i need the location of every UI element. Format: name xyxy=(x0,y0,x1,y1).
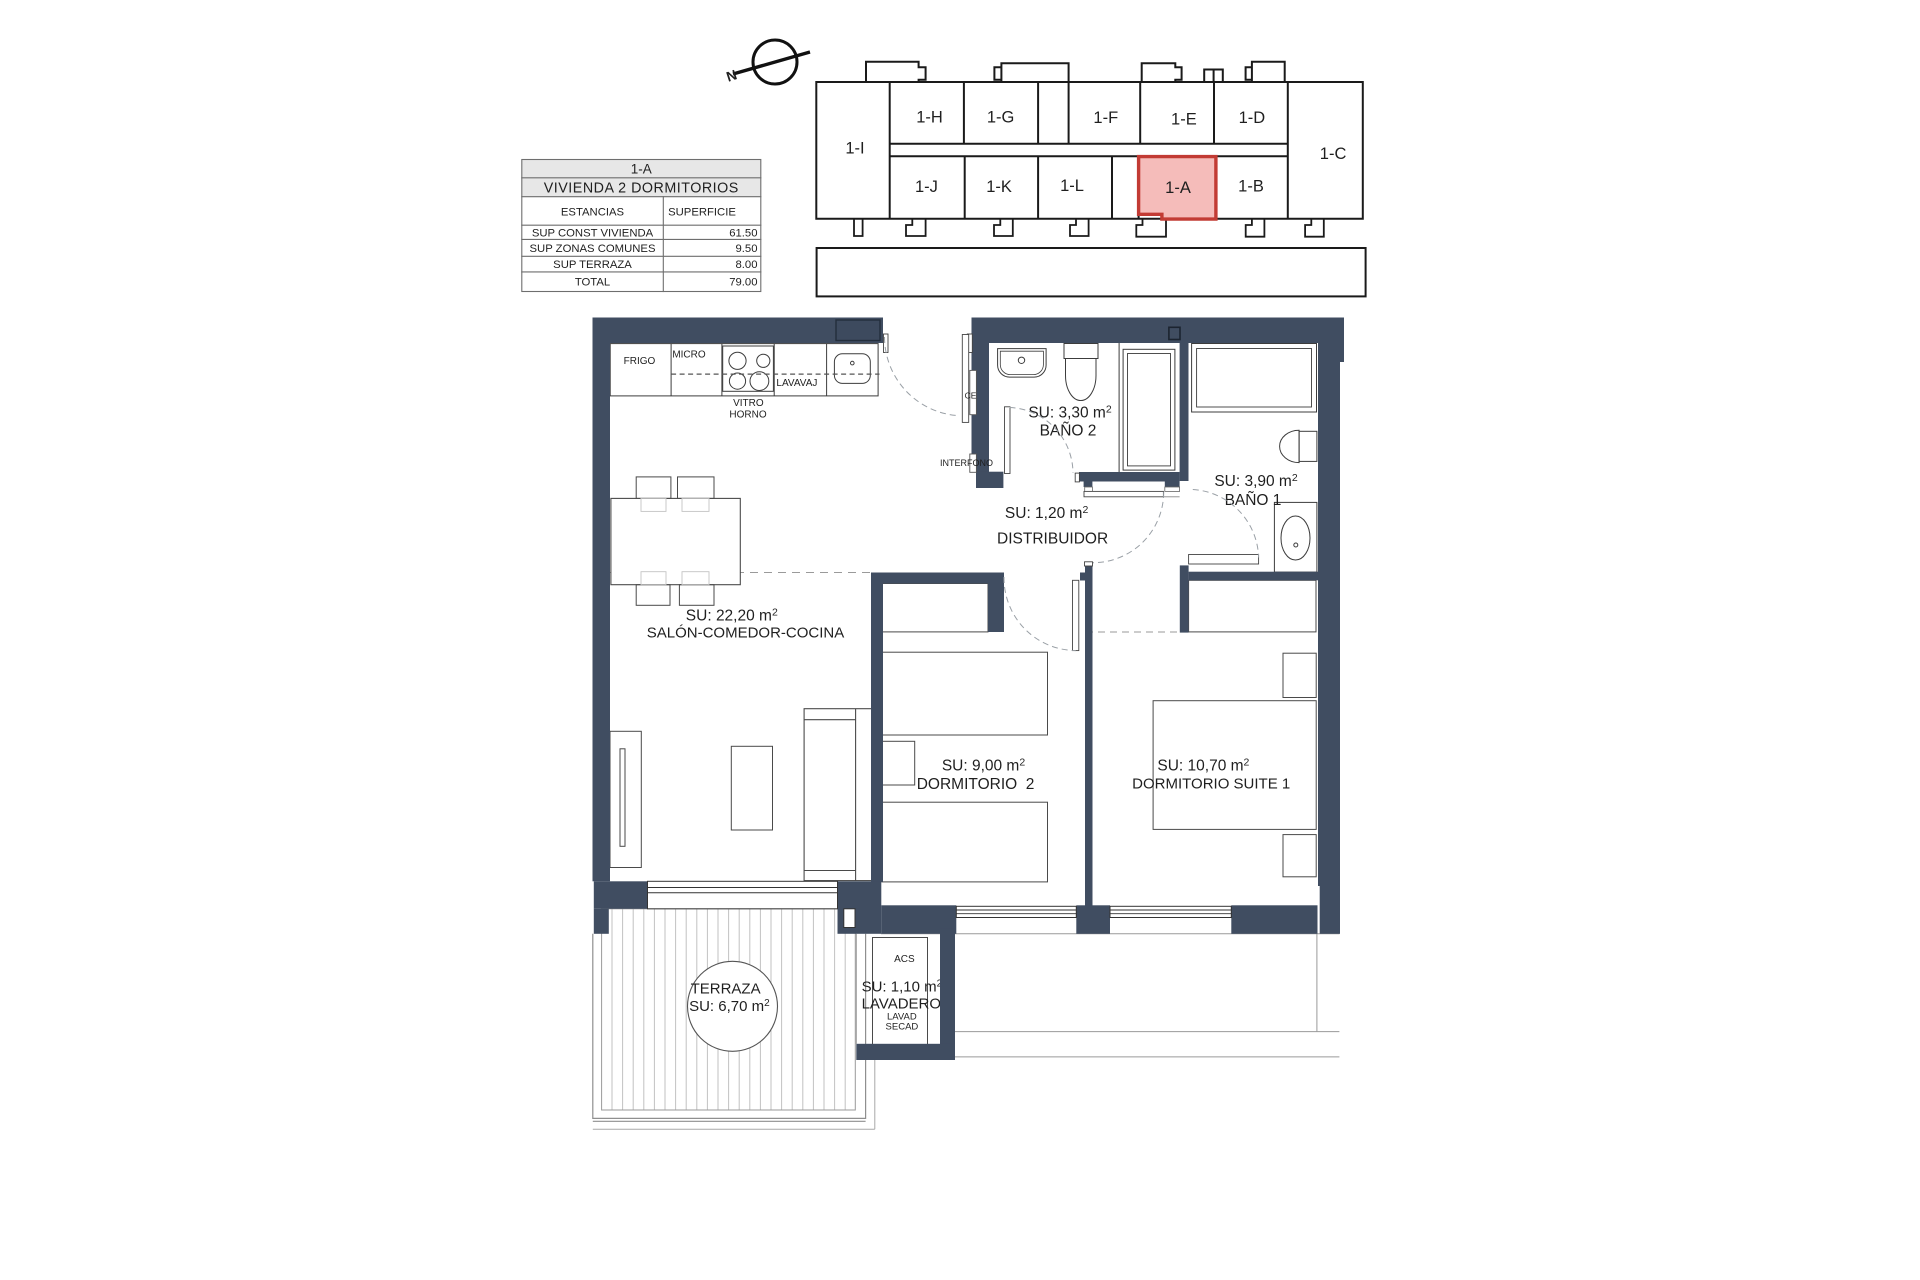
svg-text:SUP CONST VIVIENDA: SUP CONST VIVIENDA xyxy=(532,227,654,239)
svg-text:VIVIENDA 2 DORMITORIOS: VIVIENDA 2 DORMITORIOS xyxy=(544,181,739,197)
svg-text:BAÑO 1: BAÑO 1 xyxy=(1225,492,1282,509)
svg-text:SALÓN-COMEDOR-COCINA: SALÓN-COMEDOR-COCINA xyxy=(647,625,845,642)
svg-text:SU: 10,70 m2: SU: 10,70 m2 xyxy=(1157,757,1249,775)
svg-text:1-C: 1-C xyxy=(1320,145,1347,163)
svg-text:DISTRIBUIDOR: DISTRIBUIDOR xyxy=(997,530,1108,547)
svg-text:SU: 22,20 m2: SU: 22,20 m2 xyxy=(686,607,778,625)
svg-text:1-E: 1-E xyxy=(1171,111,1197,129)
svg-text:SU: 1,10 m2: SU: 1,10 m2 xyxy=(862,979,943,996)
svg-text:9.50: 9.50 xyxy=(736,243,758,255)
svg-text:MICRO: MICRO xyxy=(672,350,706,361)
svg-text:VITRO: VITRO xyxy=(733,398,764,409)
svg-text:SECAD: SECAD xyxy=(886,1022,919,1033)
svg-text:INTERFONO: INTERFONO xyxy=(940,458,993,468)
svg-text:SU: 9,00 m2: SU: 9,00 m2 xyxy=(942,756,1026,774)
svg-text:ESTANCIAS: ESTANCIAS xyxy=(561,207,625,219)
svg-text:8.00: 8.00 xyxy=(736,259,758,271)
svg-text:1-D: 1-D xyxy=(1239,109,1266,127)
svg-text:LAVAVAJ: LAVAVAJ xyxy=(776,378,817,389)
svg-text:79.00: 79.00 xyxy=(729,277,757,289)
svg-text:1-A: 1-A xyxy=(1165,179,1191,197)
svg-text:LAVADERO: LAVADERO xyxy=(862,996,941,1013)
svg-text:SUPERFICIE: SUPERFICIE xyxy=(668,207,736,219)
svg-text:1-A: 1-A xyxy=(631,162,652,177)
svg-text:1-H: 1-H xyxy=(916,109,943,127)
svg-text:1-I: 1-I xyxy=(845,140,864,158)
svg-text:1-K: 1-K xyxy=(986,178,1012,196)
svg-text:FRIGO: FRIGO xyxy=(624,356,656,367)
svg-text:HORNO: HORNO xyxy=(729,410,766,421)
svg-text:SU: 6,70 m2: SU: 6,70 m2 xyxy=(689,998,770,1015)
svg-text:1-B: 1-B xyxy=(1238,178,1264,196)
svg-text:SU: 1,20 m2: SU: 1,20 m2 xyxy=(1005,504,1089,522)
svg-text:SUP ZONAS COMUNES: SUP ZONAS COMUNES xyxy=(530,243,656,255)
svg-text:TERRAZA: TERRAZA xyxy=(691,981,761,998)
svg-text:BAÑO 2: BAÑO 2 xyxy=(1040,423,1097,440)
svg-text:CE: CE xyxy=(965,390,977,400)
svg-text:DORMITORIO SUITE 1: DORMITORIO SUITE 1 xyxy=(1132,776,1290,793)
svg-text:1-G: 1-G xyxy=(987,109,1015,127)
svg-text:DORMITORIO 2: DORMITORIO 2 xyxy=(917,776,1035,793)
svg-text:1-J: 1-J xyxy=(915,178,938,196)
svg-text:SU: 3,30 m2: SU: 3,30 m2 xyxy=(1028,404,1112,422)
svg-text:SUP TERRAZA: SUP TERRAZA xyxy=(553,259,632,271)
svg-text:61.50: 61.50 xyxy=(729,227,757,239)
svg-text:1-L: 1-L xyxy=(1060,177,1084,195)
svg-text:TOTAL: TOTAL xyxy=(575,277,610,289)
svg-text:SU: 3,90 m2: SU: 3,90 m2 xyxy=(1214,472,1298,490)
svg-text:ACS: ACS xyxy=(894,954,915,965)
svg-text:1-F: 1-F xyxy=(1093,109,1118,127)
